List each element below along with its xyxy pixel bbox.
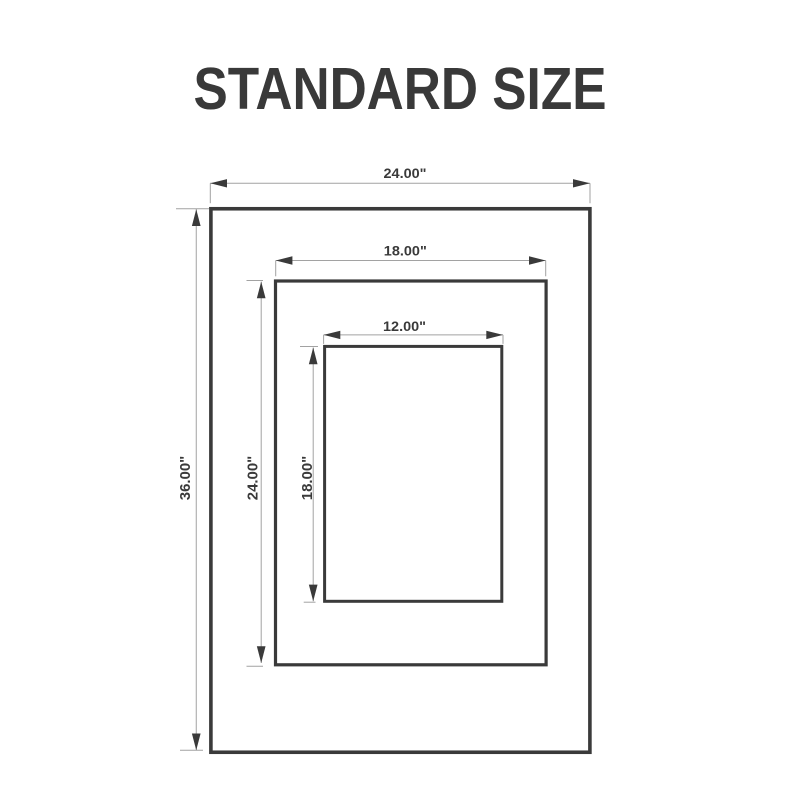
svg-text:24.00": 24.00" — [384, 165, 427, 181]
svg-text:STANDARD SIZE: STANDARD SIZE — [194, 56, 607, 122]
svg-text:18.00": 18.00" — [384, 243, 427, 259]
svg-text:36.00": 36.00" — [177, 456, 194, 501]
svg-text:24.00": 24.00" — [244, 456, 261, 501]
svg-text:18.00": 18.00" — [299, 456, 316, 501]
svg-text:12.00": 12.00" — [383, 318, 426, 334]
